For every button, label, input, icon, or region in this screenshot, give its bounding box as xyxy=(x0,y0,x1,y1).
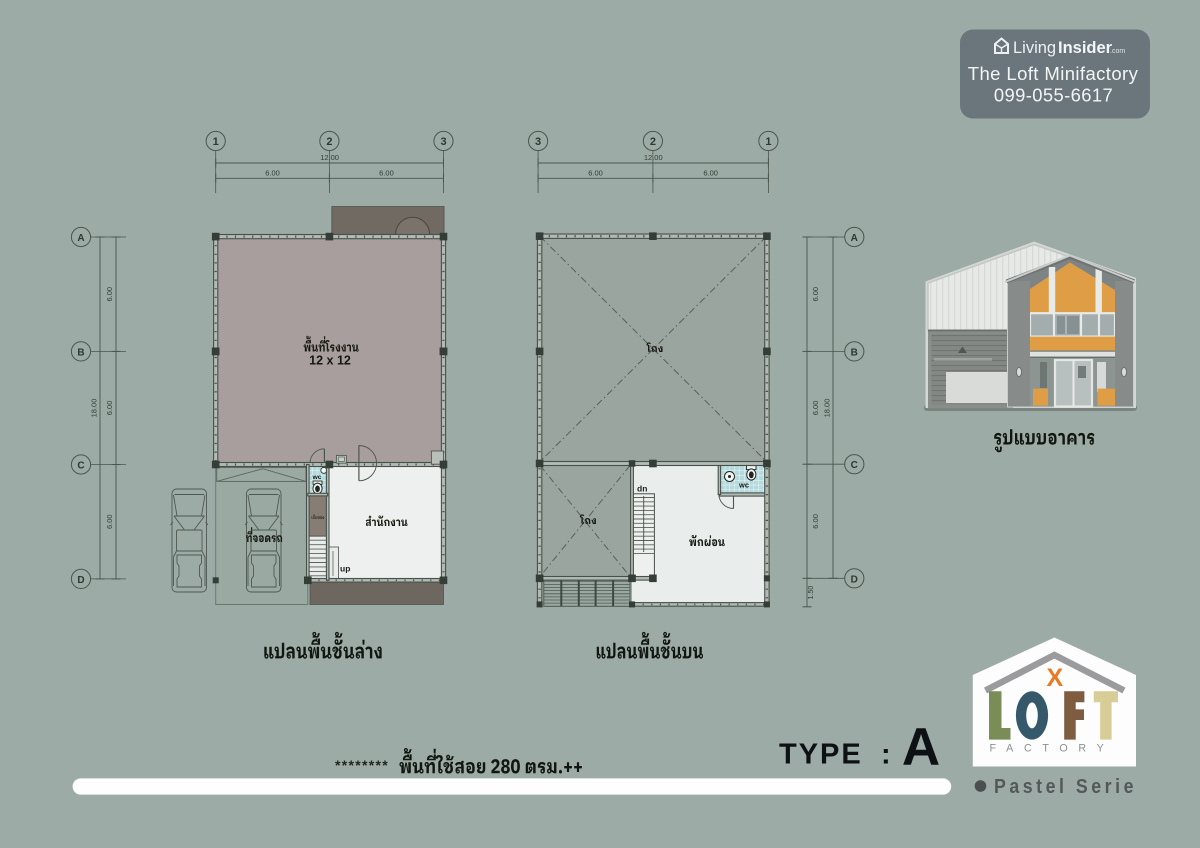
svg-text:D: D xyxy=(77,575,84,586)
svg-text:B: B xyxy=(851,347,858,358)
svg-text:6.00: 6.00 xyxy=(811,287,820,302)
svg-text:D: D xyxy=(851,574,858,585)
svg-text:12.00: 12.00 xyxy=(320,153,339,162)
svg-text:2: 2 xyxy=(326,136,332,148)
svg-text:6.00: 6.00 xyxy=(811,401,820,416)
svg-text:The Loft Minifactory: The Loft Minifactory xyxy=(968,63,1139,84)
svg-text:Living: Living xyxy=(1013,39,1056,57)
svg-text:********: ******** xyxy=(335,757,389,773)
svg-text:up: up xyxy=(340,564,350,574)
svg-text:6.00: 6.00 xyxy=(703,168,718,177)
svg-text:C: C xyxy=(77,461,84,472)
svg-text:Insider: Insider xyxy=(1058,39,1113,57)
svg-text:6.00: 6.00 xyxy=(105,514,114,529)
svg-text:dn: dn xyxy=(637,484,647,494)
svg-text:1: 1 xyxy=(213,136,219,148)
svg-text:TYPE: TYPE xyxy=(779,739,863,771)
svg-text::: : xyxy=(881,739,891,771)
svg-text:B: B xyxy=(77,347,84,358)
svg-text:6.00: 6.00 xyxy=(105,401,114,416)
svg-text:Pastel Serie: Pastel Serie xyxy=(994,776,1137,798)
svg-text:12.00: 12.00 xyxy=(644,153,663,162)
svg-text:6.00: 6.00 xyxy=(379,168,394,177)
svg-text:18.00: 18.00 xyxy=(823,399,832,418)
svg-text:wc: wc xyxy=(311,474,321,481)
svg-text:099-055-6617: 099-055-6617 xyxy=(994,85,1113,106)
svg-text:A: A xyxy=(902,718,940,777)
svg-text:1: 1 xyxy=(765,136,771,148)
svg-text:3: 3 xyxy=(440,136,446,148)
svg-text:A: A xyxy=(77,233,84,244)
svg-text:wc: wc xyxy=(738,481,749,490)
svg-text:.com: .com xyxy=(1110,48,1125,55)
svg-text:6.00: 6.00 xyxy=(105,287,114,302)
svg-text:X: X xyxy=(1046,664,1063,692)
svg-text:2: 2 xyxy=(650,136,656,148)
svg-text:3: 3 xyxy=(535,136,541,148)
svg-text:6.00: 6.00 xyxy=(811,514,820,529)
svg-text:1.50: 1.50 xyxy=(808,586,815,600)
svg-text:6.00: 6.00 xyxy=(588,168,603,177)
svg-text:18.00: 18.00 xyxy=(90,399,99,418)
svg-text:12 x 12: 12 x 12 xyxy=(309,354,351,368)
svg-text:6.00: 6.00 xyxy=(265,168,280,177)
svg-text:A: A xyxy=(851,233,858,244)
svg-text:FACTORY: FACTORY xyxy=(990,743,1115,755)
svg-text:C: C xyxy=(851,460,858,471)
